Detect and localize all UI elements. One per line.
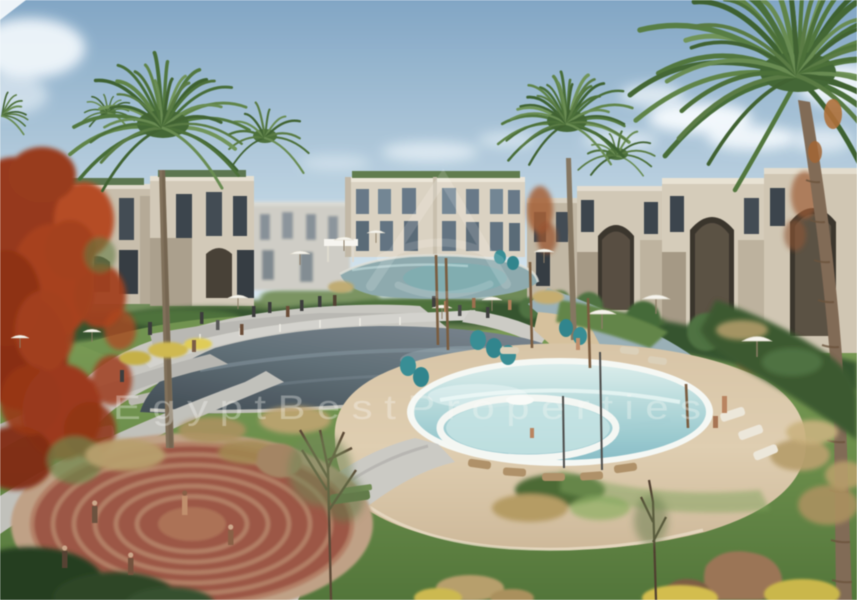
svg-text:E g y p t B e s t P r o p e: E g y p t B e s t P r o p e r t i e s xyxy=(113,389,701,427)
